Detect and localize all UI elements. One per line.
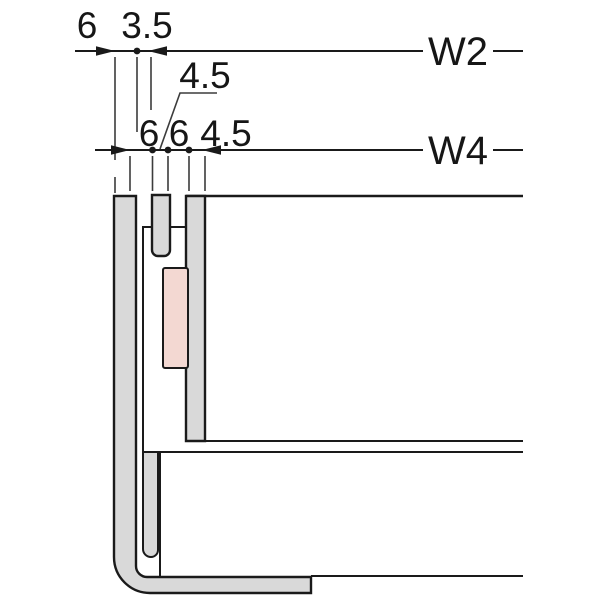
drawing-svg: 6 3.5 4.5 6 6 4.5 W2 W4 [0,0,600,600]
label-w4-seg2-leader: 4.5 [179,55,230,96]
glazing-bead-bottom [143,452,158,557]
dimension-dot [134,48,141,55]
label-w2-seg1: 6 [77,5,98,46]
gasket-pink [163,268,188,368]
label-w2-seg2: 3.5 [121,5,172,46]
glazing-bead-top [152,195,170,256]
label-w4-seg1: 6 [139,113,160,154]
technical-drawing: 6 3.5 4.5 6 6 4.5 W2 W4 [0,0,600,600]
label-w4-seg3: 6 [169,113,190,154]
label-w2: W2 [428,30,488,74]
label-w4-seg4: 4.5 [200,113,251,154]
label-w4: W4 [428,129,488,173]
